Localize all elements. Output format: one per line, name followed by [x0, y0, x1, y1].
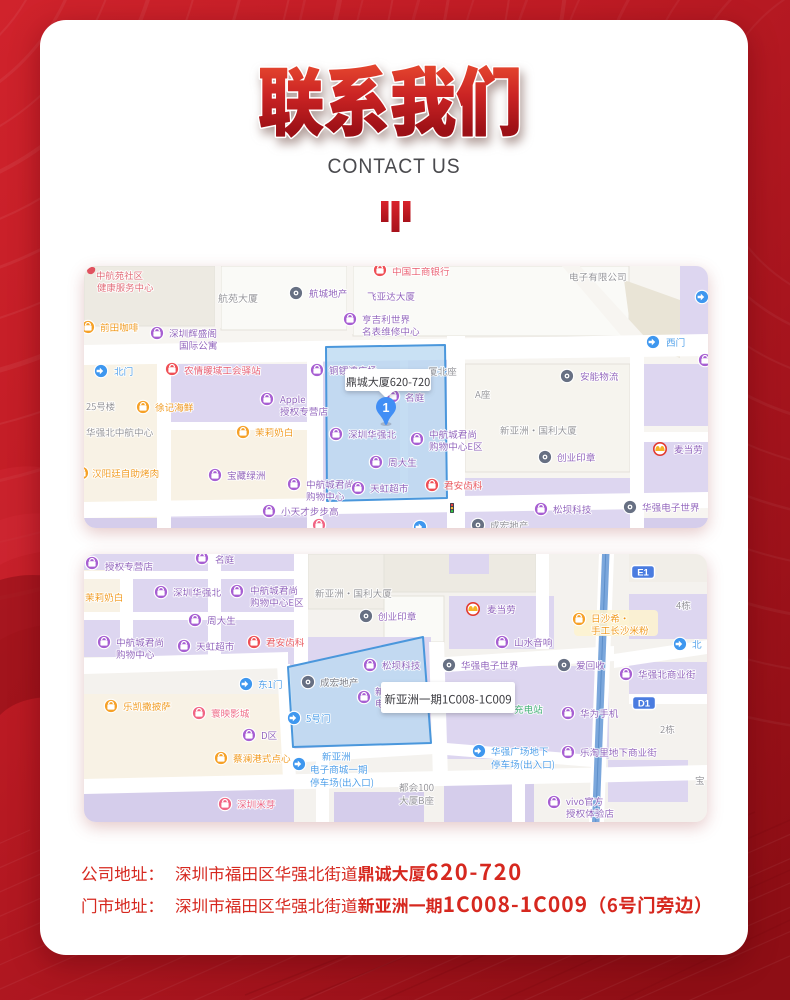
svg-text:1: 1	[383, 401, 390, 415]
svg-text:D1: D1	[638, 698, 651, 709]
svg-text:E1: E1	[637, 567, 649, 578]
